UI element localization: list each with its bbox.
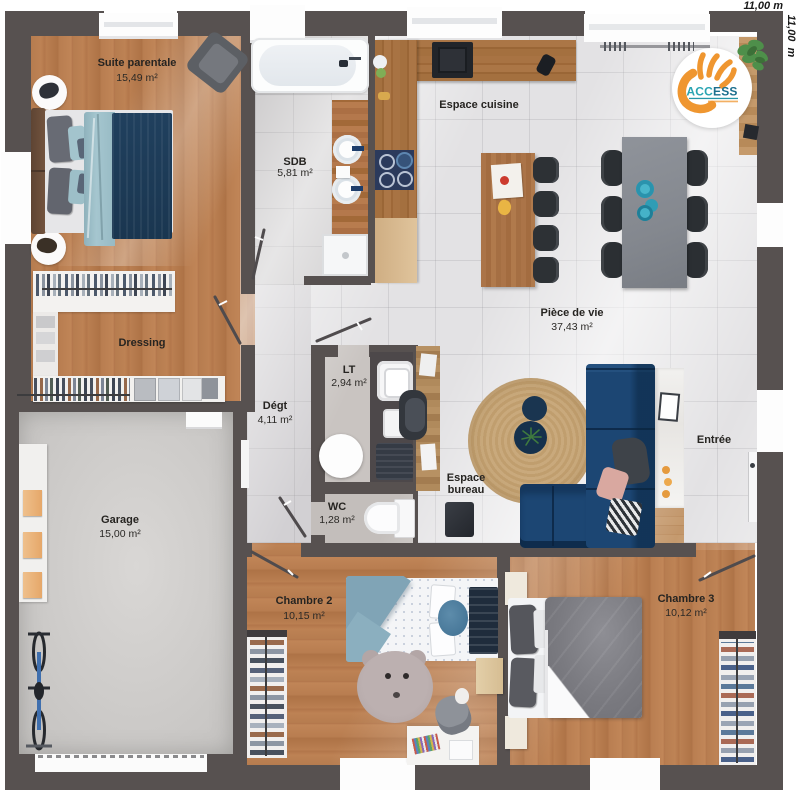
svg-text:ACCESS: ACCESS: [686, 85, 737, 99]
